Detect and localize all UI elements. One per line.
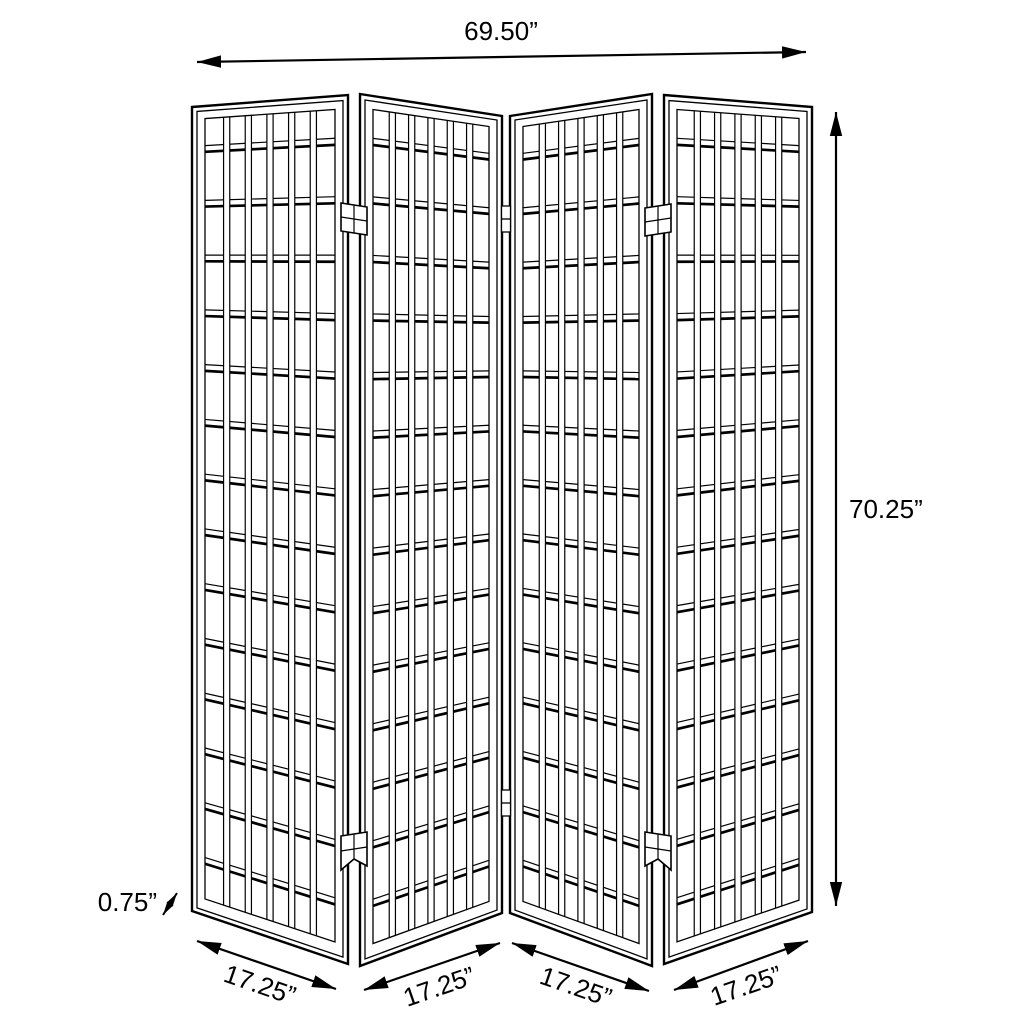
panel-1 bbox=[192, 95, 348, 964]
panel-4 bbox=[664, 95, 812, 964]
panel-thickness-arrow bbox=[163, 893, 177, 915]
panel-thickness-label: 0.75” bbox=[98, 887, 157, 917]
panel-3 bbox=[510, 94, 652, 966]
panel-thickness-dimension: 0.75” bbox=[98, 887, 177, 917]
hinge-top-panels-3-4 bbox=[645, 204, 671, 236]
overall-height-dimension: 70.25” bbox=[836, 112, 923, 906]
hinge-bottom-panels-3-4 bbox=[645, 832, 671, 870]
panel-1-width-label: 17.25” bbox=[220, 958, 299, 1010]
panel-2 bbox=[360, 94, 502, 966]
overall-width-dimension: 69.50” bbox=[197, 16, 806, 62]
panel-3-width-label: 17.25” bbox=[536, 960, 615, 1012]
hinge-bottom-panels-1-2 bbox=[341, 832, 367, 870]
hinge-top-panels-1-2 bbox=[341, 203, 367, 235]
hinge-top-panels-2-3 bbox=[502, 206, 511, 232]
panel-4-width-label: 17.25” bbox=[706, 959, 785, 1011]
panel-width-dimensions: 17.25” 17.25” 17.25” 17.25” bbox=[197, 941, 808, 1013]
panel-2-width-label: 17.25” bbox=[399, 960, 478, 1012]
folding-screen-line-drawing: 69.50” 70.25” 0.75” 17.25” 17.25” 17.25”… bbox=[0, 0, 1024, 1024]
dimension-diagram: 69.50” 70.25” 0.75” 17.25” 17.25” 17.25”… bbox=[0, 0, 1024, 1024]
overall-width-arrow bbox=[197, 52, 806, 62]
hinge-bottom-panels-2-3 bbox=[502, 790, 511, 816]
overall-width-label: 69.50” bbox=[464, 16, 538, 46]
overall-height-label: 70.25” bbox=[849, 494, 923, 524]
